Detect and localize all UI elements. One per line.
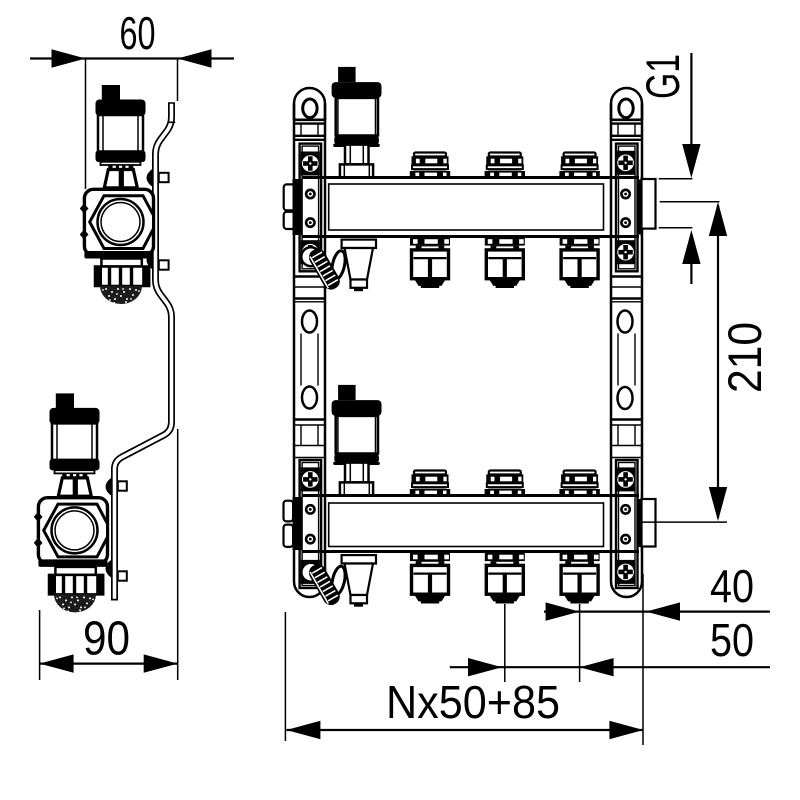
svg-text:90: 90 (83, 613, 130, 666)
svg-text:Nx50+85: Nx50+85 (386, 676, 560, 728)
svg-text:50: 50 (710, 614, 754, 666)
svg-text:60: 60 (120, 7, 156, 59)
svg-text:G1: G1 (636, 54, 689, 99)
svg-text:40: 40 (710, 560, 754, 612)
svg-text:210: 210 (718, 322, 771, 393)
